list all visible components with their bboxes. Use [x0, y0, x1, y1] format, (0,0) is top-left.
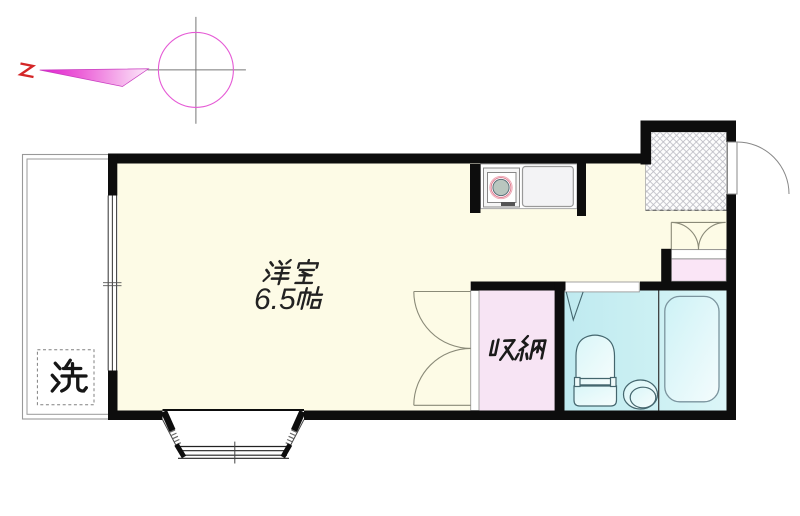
svg-text:6.5: 6.5 [254, 283, 296, 316]
